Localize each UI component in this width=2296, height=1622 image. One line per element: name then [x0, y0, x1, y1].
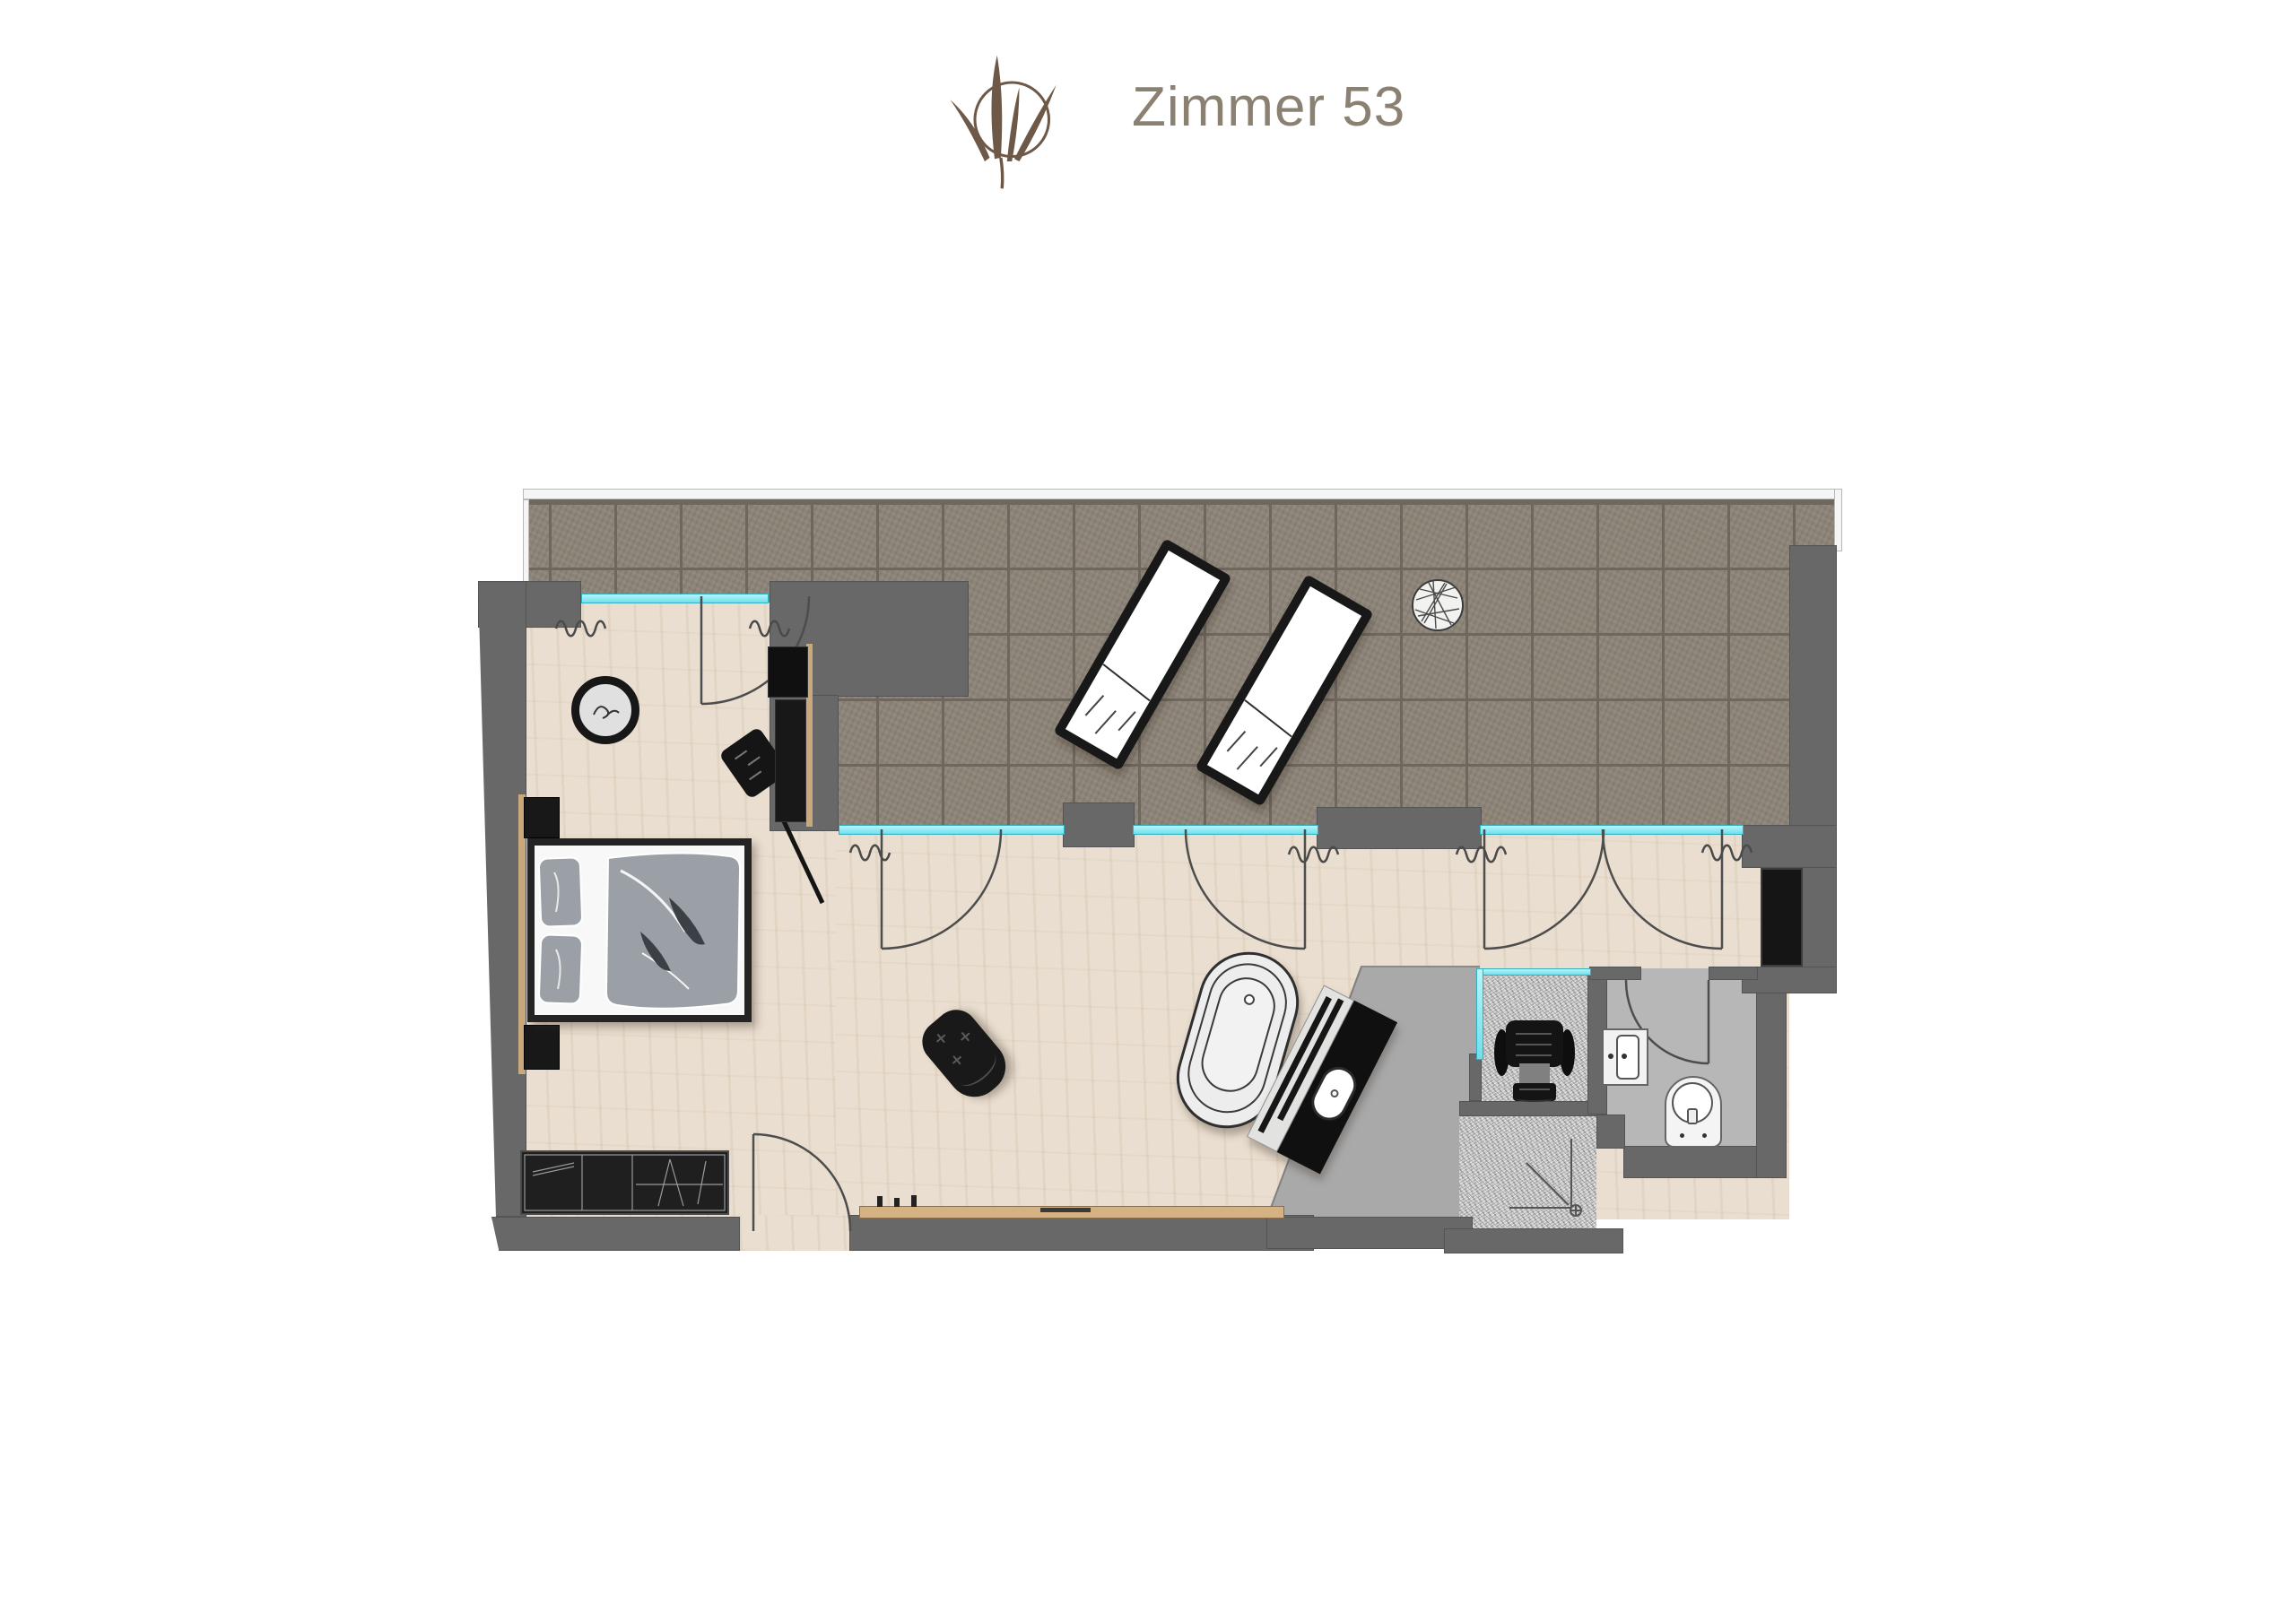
stool-stitch — [748, 756, 761, 766]
washbasin-tap — [1622, 1054, 1627, 1059]
wall-bottom-bath — [1266, 1217, 1473, 1249]
hanging-chair — [571, 676, 639, 744]
floorplan-page: Zimmer 53 — [0, 0, 2296, 1622]
relax-chair-line — [1516, 1054, 1552, 1056]
relax-chair-line — [1519, 1089, 1550, 1090]
bedding — [535, 846, 744, 1015]
wall-wc-left-lower — [1596, 1115, 1625, 1149]
page-title: Zimmer 53 — [1132, 75, 1405, 139]
window-living-left-b — [1133, 825, 1318, 835]
window-bedroom — [581, 594, 769, 603]
lounger-fold-line — [1244, 699, 1291, 737]
wall-right-wc — [1756, 973, 1787, 1178]
tall-cabinet — [1761, 868, 1803, 967]
hotel-plant-logo-icon — [938, 43, 1091, 191]
nightstand — [524, 797, 560, 838]
relax-chair — [1494, 1020, 1575, 1103]
wall-window-pillar-left — [1063, 802, 1135, 847]
lounger-slat — [1085, 695, 1105, 716]
lounger-slat — [1227, 731, 1247, 752]
relax-chair-base — [1516, 1096, 1553, 1102]
lounger-fold-line — [1102, 664, 1150, 701]
window-living-left-a — [839, 825, 1065, 835]
stool-stitch — [749, 770, 761, 780]
tv-panel — [775, 699, 806, 822]
wall-wc-top-left — [1589, 967, 1641, 980]
armchair-seat-line — [952, 1045, 1002, 1092]
glass-cabin-left — [1476, 968, 1483, 1060]
washbasin-bowl — [1616, 1035, 1639, 1080]
lounger-slat — [1237, 746, 1258, 770]
entry-floor — [740, 1215, 851, 1251]
terrace-frame-top — [523, 489, 1841, 499]
wall-window-pillar-right — [1317, 807, 1482, 849]
nightstand — [524, 1025, 560, 1070]
window-living-right — [1480, 825, 1744, 835]
bench-object — [877, 1196, 883, 1207]
bathroom-floor-top-edge — [1361, 966, 1480, 967]
lounger-slat — [1095, 710, 1117, 734]
relax-chair-line — [1516, 1033, 1552, 1035]
bench-object — [894, 1198, 900, 1207]
lounger-slat — [1118, 711, 1135, 731]
wall-niche-top — [1742, 825, 1837, 868]
toilet-dot — [1680, 1133, 1684, 1138]
washbasin-tap — [1608, 1054, 1613, 1059]
wall-cabin-left-stub — [1469, 1054, 1482, 1101]
shower-floor — [1459, 1115, 1596, 1230]
wall-bottom-shower — [1444, 1228, 1623, 1253]
bench-tray — [1040, 1208, 1091, 1212]
terrace-side-table — [1410, 577, 1465, 633]
wall-bottom-left — [491, 1217, 740, 1251]
glass-cabin-top — [1480, 968, 1591, 976]
wall-cabin-shower — [1459, 1101, 1601, 1116]
wall-wc-top-right — [1709, 967, 1758, 980]
washbasin — [1602, 1028, 1648, 1086]
lounger-slat — [1259, 747, 1277, 767]
terrace-frame-left — [523, 499, 529, 585]
hanging-chair-detail — [579, 684, 631, 736]
tv-sideboard — [768, 646, 808, 698]
double-bed — [527, 838, 752, 1022]
toilet-dot — [1702, 1133, 1707, 1138]
stool-stitch — [735, 750, 747, 760]
terrace-frame-right — [1834, 489, 1842, 551]
wall-bottom-mid — [849, 1215, 1314, 1251]
wardrobe — [520, 1150, 729, 1215]
relax-chair-line — [1516, 1044, 1552, 1045]
wardrobe-interior — [522, 1152, 727, 1213]
toilet — [1665, 1076, 1722, 1148]
bench-object — [911, 1195, 917, 1207]
toilet-flush — [1687, 1108, 1698, 1124]
